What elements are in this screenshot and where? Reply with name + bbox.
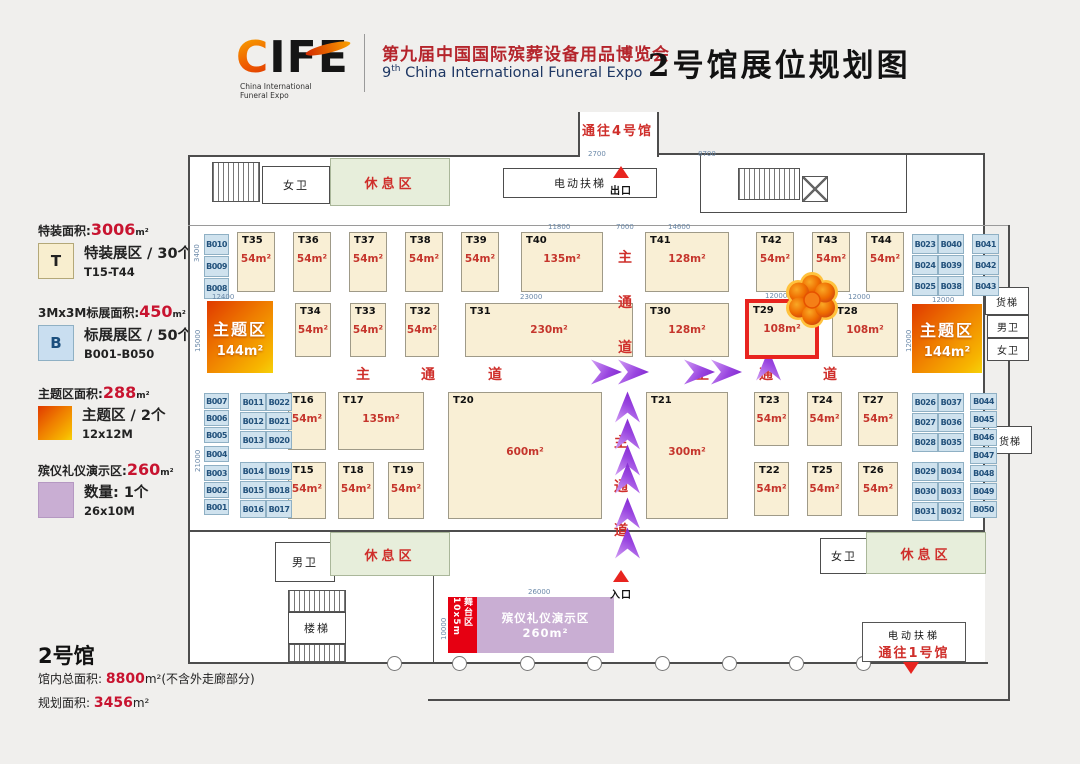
stairs-hatch-top-left bbox=[212, 162, 260, 202]
theme-zone-swatch bbox=[38, 406, 72, 440]
legend-item-special: T 特装展区 / 30个T15-T44 bbox=[38, 242, 192, 279]
restroom-women-top: 女卫 bbox=[262, 166, 330, 204]
hall-total-area: 馆内总面积: 8800m²(不含外走廊部分) bbox=[38, 670, 255, 687]
legend-item-demo: 数量: 1个26x10M bbox=[38, 481, 148, 518]
escalator-to-hall1: 电动扶梯 通往1号馆 bbox=[862, 622, 966, 662]
stairs-hatch-top-right bbox=[738, 168, 800, 200]
logo-letter-c: C bbox=[236, 32, 269, 83]
entrance-arrow-icon bbox=[613, 570, 629, 582]
logo-tagline: China International Funeral Expo bbox=[240, 82, 312, 100]
legend-stat-special: 特装面积:3006m² bbox=[38, 220, 149, 239]
demo-zone-swatch bbox=[38, 482, 74, 518]
rest-area-bottom-right: 休息区 bbox=[866, 532, 986, 574]
floor-plan-page: { "header": { "logo": {"c": "C", "rest":… bbox=[0, 0, 1080, 764]
expo-title-en: 9th China International Funeral Expo bbox=[382, 64, 642, 81]
hall-planned-area: 规划面积: 3456m² bbox=[38, 694, 149, 711]
cife-logo: CIFE bbox=[236, 32, 349, 83]
legend-stat-demo: 殡仪礼仪演示区:260m² bbox=[38, 460, 174, 479]
legend-stat-standard: 3Mx3M标展面积:450m² bbox=[38, 302, 186, 321]
entrance-label: 入口 bbox=[610, 586, 632, 601]
exit-arrow-icon bbox=[613, 166, 629, 178]
escalator-top: 电动扶梯 bbox=[503, 168, 657, 198]
legend-item-standard: B 标展展区 / 50个B001-B050 bbox=[38, 324, 192, 361]
stage-zone: 舞台区 10x5m bbox=[448, 597, 477, 653]
restroom-women-bottom: 女卫 bbox=[820, 538, 868, 574]
special-booth-swatch: T bbox=[38, 243, 74, 279]
stairs-label: 楼梯 bbox=[288, 612, 346, 644]
restroom-women-right: 女卫 bbox=[987, 338, 1029, 361]
logo-letters-ife: IFE bbox=[269, 32, 348, 83]
to-hall4-label: 通往4号馆 bbox=[582, 120, 653, 139]
rest-area-bottom-left: 休息区 bbox=[330, 532, 450, 576]
ceremony-demo-zone: 殡仪礼仪演示区260m² bbox=[477, 597, 614, 653]
hall-name: 2号馆 bbox=[38, 640, 95, 670]
rest-area-top: 休息区 bbox=[330, 158, 450, 206]
page-title: 2号馆展位规划图 bbox=[648, 40, 911, 85]
standard-booth-swatch: B bbox=[38, 325, 74, 361]
highlight-star-marker bbox=[781, 269, 843, 331]
legend-item-theme: 主题区 / 2个12x12M bbox=[38, 404, 165, 441]
freight-elevator-1: 货梯 bbox=[985, 287, 1029, 315]
restroom-men-right: 男卫 bbox=[987, 315, 1029, 338]
restroom-men-bottom: 男卫 bbox=[275, 542, 335, 582]
freight-elevator-2: 货梯 bbox=[988, 426, 1032, 454]
to-hall1-label: 通往1号馆 bbox=[863, 642, 965, 661]
legend-stat-theme: 主题区面积:288m² bbox=[38, 383, 150, 402]
expo-title-cn: 第九届中国国际殡葬设备用品博览会 bbox=[382, 40, 670, 65]
to-hall1-arrow-icon bbox=[903, 662, 919, 674]
exit-label: 出口 bbox=[610, 182, 632, 197]
elevator-icon bbox=[802, 176, 828, 202]
stairs-hatch-bottom-2 bbox=[288, 644, 346, 662]
stairs-hatch-bottom-1 bbox=[288, 590, 346, 612]
header-divider bbox=[364, 34, 365, 92]
